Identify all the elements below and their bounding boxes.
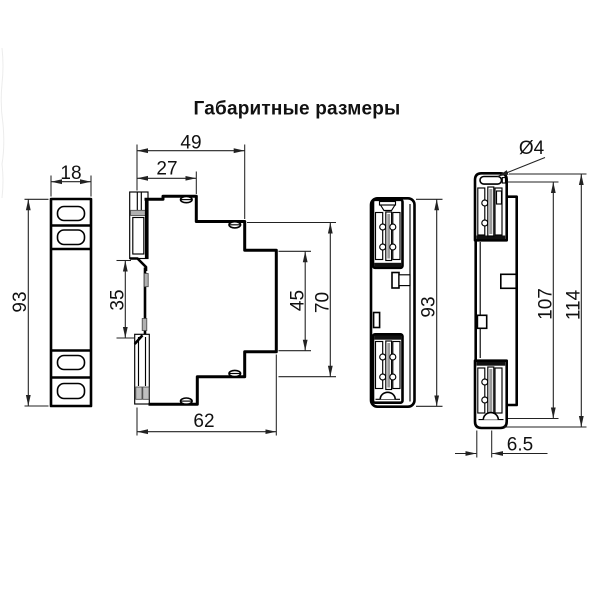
dim-label-hole-diameter: Ø4 <box>519 138 545 159</box>
terminal-block-bottom <box>373 334 403 402</box>
dim-label-93-left: 93 <box>10 291 31 312</box>
terminal-slot <box>58 384 85 399</box>
scan-artifact <box>1 48 4 198</box>
dim-label-27: 27 <box>156 159 177 180</box>
dim-label-62: 62 <box>193 411 214 432</box>
terminal-block-top <box>373 200 403 268</box>
view-side-profile: 49 27 35 45 70 62 <box>108 133 337 436</box>
terminal-slot <box>58 356 85 370</box>
dim-label-6-5: 6.5 <box>507 435 533 456</box>
edge-tab <box>142 319 147 331</box>
dim-label-18: 18 <box>60 163 81 184</box>
side-latch <box>392 273 399 289</box>
dim-label-45: 45 <box>288 290 309 311</box>
clip-foot <box>130 259 146 272</box>
profile-outline <box>146 196 276 404</box>
edge-tab <box>144 274 148 287</box>
left-tab <box>374 313 380 328</box>
left-tab <box>477 315 486 328</box>
dim-label-114: 114 <box>564 289 585 320</box>
drawing-page: 18 93 <box>0 0 600 600</box>
terminal-slot <box>58 230 85 245</box>
view-front: 93 <box>371 198 443 406</box>
screw-head <box>380 202 396 206</box>
dim-label-107: 107 <box>536 288 557 320</box>
side-latch-tab <box>399 275 410 286</box>
dim-label-70: 70 <box>313 292 334 313</box>
clip-dome <box>380 392 395 399</box>
mounting-hole-slot <box>480 177 502 185</box>
clip-dome <box>483 413 498 420</box>
screw-hole-ovals <box>181 197 241 405</box>
drawing-title: Габаритные размеры <box>194 99 401 120</box>
dimension-drawing: 18 93 <box>0 0 600 600</box>
view-rear: Ø4 107 114 6.5 <box>455 138 587 458</box>
dim-label-93-right: 93 <box>419 296 440 317</box>
view-front-narrow: 18 93 <box>10 163 91 406</box>
dim-label-35: 35 <box>108 289 129 310</box>
terminal-block-bottom <box>475 361 507 428</box>
terminal-block-top <box>475 173 507 240</box>
side-latch <box>501 274 516 288</box>
terminal-slot <box>58 207 85 221</box>
dim-label-49: 49 <box>180 133 201 154</box>
